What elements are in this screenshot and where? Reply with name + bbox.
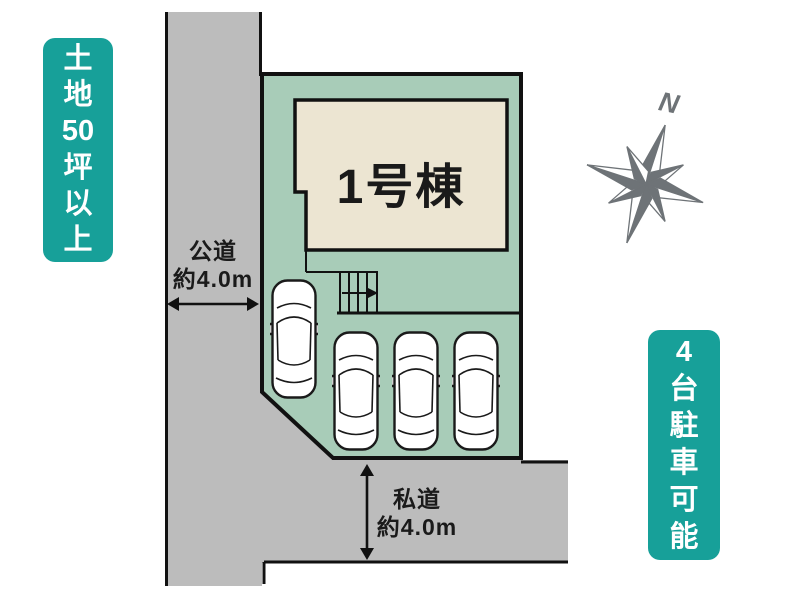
land-size-badge: 土 地 50 坪 以 上 xyxy=(43,38,113,262)
building-label: 1号棟 xyxy=(283,147,519,217)
public-road-name: 公道 xyxy=(163,238,263,266)
badge-char: 上 xyxy=(63,226,92,255)
badge-char: 車 xyxy=(669,449,698,478)
badge-char: 以 xyxy=(63,190,92,219)
private-road-name: 私道 xyxy=(374,486,460,514)
car-icon xyxy=(331,333,381,450)
compass-rose-icon xyxy=(568,106,722,262)
badge-char: 土 xyxy=(63,45,92,74)
badge-char: 駐 xyxy=(669,412,698,441)
badge-char: 地 xyxy=(63,81,92,110)
car-icon xyxy=(391,333,441,450)
badge-char: 4 xyxy=(676,338,692,367)
parking-capacity-badge: 4 台 駐 車 可 能 xyxy=(648,330,720,560)
badge-char: 可 xyxy=(669,486,698,515)
private-road-width: 約4.0m xyxy=(374,514,460,542)
car-icon xyxy=(451,333,501,450)
public-road-label: 公道 約4.0m xyxy=(163,238,263,293)
badge-char: 50 xyxy=(62,117,94,146)
public-road-width: 約4.0m xyxy=(163,266,263,294)
car-icon xyxy=(269,281,319,398)
private-road-label: 私道 約4.0m xyxy=(374,486,460,541)
badge-char: 能 xyxy=(669,523,698,552)
badge-char: 坪 xyxy=(63,154,92,183)
plot-plan-canvas: 1号棟 公道 約4.0m 私道 約4.0m N 土 地 50 坪 以 上 4 台… xyxy=(0,0,800,600)
badge-char: 台 xyxy=(669,375,698,404)
